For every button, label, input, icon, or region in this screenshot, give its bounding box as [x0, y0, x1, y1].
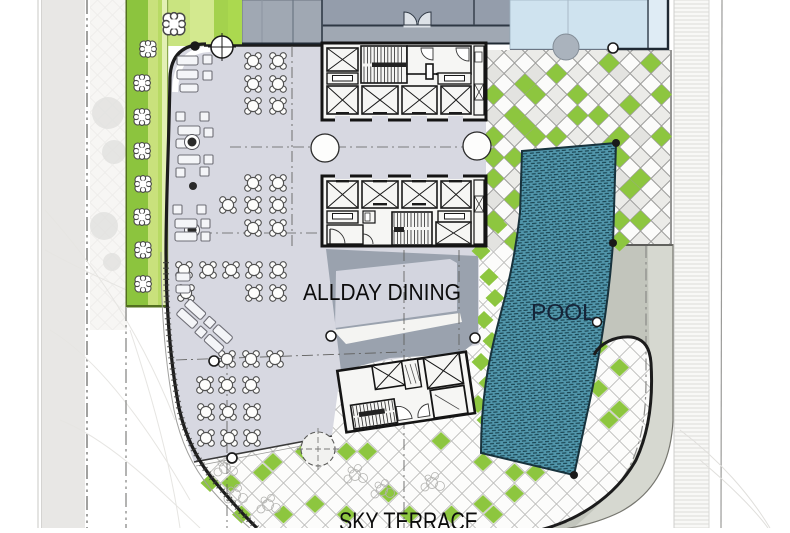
svg-text:ALLDAY DINING: ALLDAY DINING — [303, 279, 461, 305]
svg-text:POOL: POOL — [531, 299, 595, 325]
svg-text:SKY TERRACE: SKY TERRACE — [339, 508, 478, 528]
